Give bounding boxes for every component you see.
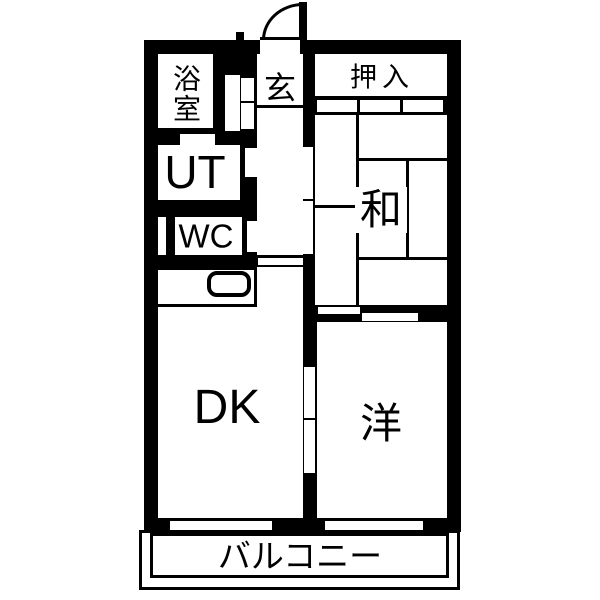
bath-door-opening: [180, 134, 215, 145]
sliding-door-panel: [241, 78, 254, 101]
japanese-room-label: 和: [355, 187, 407, 233]
floor-plan: 浴室 玄 押入 UT WC 和 DK 洋 バルコニー: [0, 0, 600, 600]
tatami-line: [315, 205, 357, 208]
dining-kitchen-label: DK: [194, 384, 261, 432]
closet-fusuma-panel: [360, 100, 400, 112]
tatami-line: [357, 257, 447, 260]
window-opening: [170, 521, 272, 530]
wall-segment: [144, 40, 158, 532]
sliding-door-panel: [303, 201, 313, 254]
entrance-door-leaf: [299, 2, 307, 40]
closet-fusuma-panel: [317, 100, 357, 112]
sliding-door-panel: [241, 103, 254, 129]
sliding-door-panel: [362, 313, 418, 321]
sliding-door-panel: [304, 367, 315, 418]
genkan-shoe-recess: [225, 75, 240, 131]
western-room-label: 洋: [360, 403, 402, 445]
sliding-door-panel: [304, 420, 315, 473]
bath-room-label: 浴室: [171, 64, 199, 124]
window-opening: [325, 521, 423, 530]
closet-fusuma-panel: [403, 100, 443, 112]
toilet-door-opening: [247, 221, 257, 252]
hall-opening: [258, 258, 303, 265]
wall-segment: [300, 40, 461, 54]
sliding-door-panel: [318, 307, 360, 314]
wall-segment: [166, 217, 175, 255]
utility-door-opening: [245, 148, 257, 177]
kitchen-sink: [207, 271, 251, 297]
entrance-door-swing-arc: [262, 3, 303, 40]
sliding-door-panel: [303, 147, 313, 199]
utility-room-label: UT: [164, 149, 225, 195]
entrance-label: 玄: [264, 72, 296, 104]
toilet-label: WC: [179, 220, 234, 253]
entrance-threshold-line: [260, 37, 303, 40]
balcony-label: バルコニー: [218, 540, 382, 573]
closet-label: 押入: [350, 65, 414, 92]
tatami-line: [357, 158, 447, 161]
wall-segment: [144, 200, 257, 217]
